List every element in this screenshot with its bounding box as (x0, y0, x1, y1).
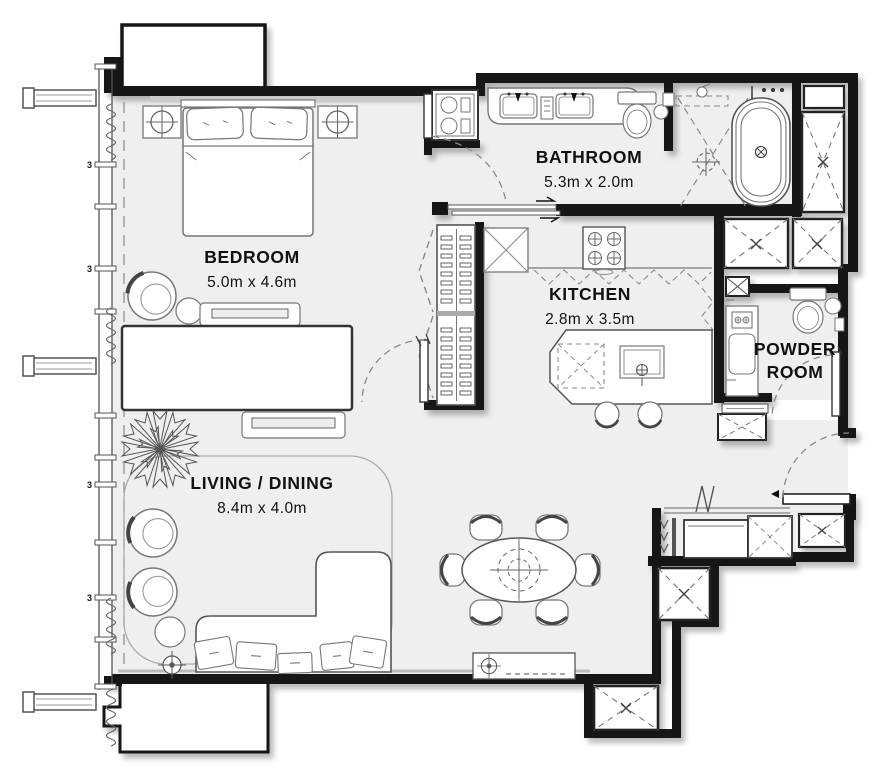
kitchen-island (550, 330, 712, 404)
tick-label: 3 (87, 264, 92, 274)
bedroom-label: BEDROOM (204, 247, 300, 267)
kitchen-dims: 2.8m x 3.5m (545, 311, 635, 328)
bathroom-dims: 5.3m x 2.0m (544, 174, 634, 191)
powder-shelf (722, 404, 768, 413)
kitchen-corner-counter (484, 228, 528, 272)
shaft-vertical-right (802, 112, 844, 212)
vanity-double (488, 88, 640, 124)
bathroom-label: BATHROOM (536, 147, 643, 167)
shaft-small-powder (726, 277, 749, 296)
shaft-square-mid-1 (724, 219, 788, 268)
powder-room-label-line1: POWDER (754, 339, 836, 359)
living-media-console (242, 412, 345, 438)
headboard (181, 100, 315, 107)
bottom-bumpout (104, 682, 268, 752)
facade-fin (23, 88, 96, 108)
shaft-outside-living (658, 568, 710, 620)
powder-room-label-line2: ROOM (767, 362, 824, 382)
facade-fin (23, 692, 96, 712)
cooktop (583, 227, 625, 275)
closet-x-cabinet (748, 516, 792, 558)
side-table (155, 617, 185, 647)
bedroom-side-table (176, 298, 202, 324)
tick-label: 3 (87, 593, 92, 603)
tick-label: 3 (87, 160, 92, 170)
kitchen-label: KITCHEN (549, 284, 631, 304)
top-bumpout (122, 25, 265, 88)
bedroom-dims: 5.0m x 4.6m (207, 274, 297, 291)
shaft-square-mid-2 (793, 219, 842, 268)
nightstand-left (143, 106, 181, 138)
nightstand-right (318, 106, 357, 138)
bedroom-media-console (200, 303, 300, 326)
console-table (473, 653, 575, 679)
floorplan-canvas: 3 3 3 3 (0, 0, 892, 780)
living-dining-dims: 8.4m x 4.0m (217, 500, 307, 517)
tub-drain-icon (756, 147, 767, 158)
partition-wardrobe-unit (122, 326, 352, 410)
shaft-vestibule (594, 686, 658, 730)
laundry-closet (432, 90, 478, 140)
shaft-below-powder (718, 414, 766, 440)
floorplan-page: 3 3 3 3 (0, 0, 892, 780)
bed (183, 107, 313, 236)
shaft-entry-right (799, 514, 845, 547)
tick-label: 3 (87, 480, 92, 490)
living-dining-label: LIVING / DINING (190, 473, 333, 493)
shaft-plain-topright (804, 86, 844, 108)
glazing-tick-labels: 3 3 3 3 (87, 160, 92, 603)
facade-fin (23, 356, 96, 376)
